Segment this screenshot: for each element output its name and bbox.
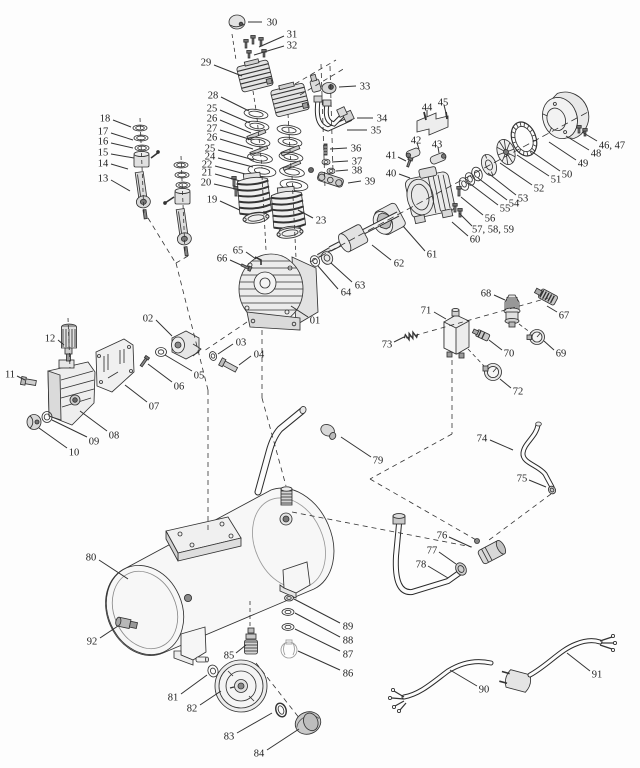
svg-text:65: 65 (233, 246, 244, 257)
svg-text:14: 14 (98, 159, 109, 170)
svg-text:41: 41 (386, 151, 397, 162)
svg-text:08: 08 (109, 431, 120, 442)
svg-text:03: 03 (236, 338, 247, 349)
svg-text:67: 67 (559, 311, 570, 322)
svg-text:54: 54 (509, 199, 520, 210)
svg-text:76: 76 (437, 531, 448, 542)
svg-text:32: 32 (287, 41, 298, 52)
svg-text:87: 87 (343, 650, 354, 661)
svg-text:39: 39 (365, 177, 376, 188)
svg-text:49: 49 (578, 159, 589, 170)
svg-text:23: 23 (316, 216, 327, 227)
svg-text:60: 60 (470, 235, 481, 246)
svg-text:46, 47: 46, 47 (599, 141, 625, 152)
svg-text:64: 64 (341, 288, 352, 299)
svg-text:45: 45 (438, 98, 449, 109)
svg-text:07: 07 (149, 402, 160, 413)
svg-text:77: 77 (427, 546, 438, 557)
svg-text:43: 43 (432, 140, 443, 151)
svg-text:62: 62 (394, 259, 405, 270)
svg-text:70: 70 (504, 349, 515, 360)
svg-text:83: 83 (224, 732, 235, 743)
svg-text:42: 42 (411, 136, 422, 147)
svg-text:29: 29 (201, 58, 212, 69)
svg-text:66: 66 (217, 254, 228, 265)
svg-text:79: 79 (373, 456, 384, 467)
svg-text:13: 13 (98, 174, 109, 185)
svg-text:06: 06 (174, 382, 185, 393)
svg-text:30: 30 (267, 18, 278, 29)
svg-text:85: 85 (224, 651, 235, 662)
svg-text:38: 38 (352, 166, 363, 177)
svg-text:53: 53 (518, 194, 529, 205)
svg-text:81: 81 (168, 693, 179, 704)
svg-text:02: 02 (143, 314, 154, 325)
svg-text:04: 04 (254, 350, 265, 361)
svg-text:92: 92 (87, 637, 98, 648)
svg-text:69: 69 (556, 349, 567, 360)
svg-text:20: 20 (201, 178, 212, 189)
svg-text:71: 71 (421, 306, 432, 317)
svg-text:19: 19 (207, 195, 218, 206)
svg-text:12: 12 (45, 334, 56, 345)
svg-text:90: 90 (479, 685, 490, 696)
svg-text:40: 40 (386, 169, 397, 180)
svg-text:74: 74 (477, 434, 488, 445)
svg-text:86: 86 (343, 669, 354, 680)
svg-text:55: 55 (500, 204, 511, 215)
svg-text:78: 78 (416, 560, 427, 571)
svg-text:15: 15 (98, 148, 109, 159)
svg-text:01: 01 (310, 316, 321, 327)
svg-text:34: 34 (377, 114, 388, 125)
svg-text:16: 16 (98, 137, 109, 148)
svg-text:63: 63 (355, 281, 366, 292)
svg-text:35: 35 (371, 126, 382, 137)
svg-text:50: 50 (562, 170, 573, 181)
svg-text:61: 61 (427, 250, 438, 261)
svg-text:56: 56 (485, 214, 496, 225)
svg-text:75: 75 (517, 474, 528, 485)
svg-text:05: 05 (194, 371, 205, 382)
svg-text:18: 18 (100, 114, 111, 125)
svg-text:82: 82 (187, 704, 198, 715)
svg-text:31: 31 (287, 30, 298, 41)
svg-text:52: 52 (534, 184, 545, 195)
svg-text:68: 68 (481, 289, 492, 300)
svg-text:89: 89 (343, 622, 354, 633)
svg-text:28: 28 (208, 91, 219, 102)
svg-text:51: 51 (551, 175, 562, 186)
svg-text:09: 09 (89, 437, 100, 448)
svg-text:80: 80 (86, 553, 97, 564)
svg-text:11: 11 (5, 370, 15, 381)
svg-text:33: 33 (360, 82, 371, 93)
svg-text:73: 73 (382, 340, 393, 351)
svg-text:91: 91 (592, 670, 603, 681)
svg-text:88: 88 (343, 636, 354, 647)
svg-text:36: 36 (351, 144, 362, 155)
svg-text:48: 48 (591, 149, 602, 160)
svg-text:84: 84 (254, 749, 265, 760)
svg-text:72: 72 (513, 387, 524, 398)
svg-text:26: 26 (207, 133, 218, 144)
svg-text:10: 10 (69, 448, 80, 459)
